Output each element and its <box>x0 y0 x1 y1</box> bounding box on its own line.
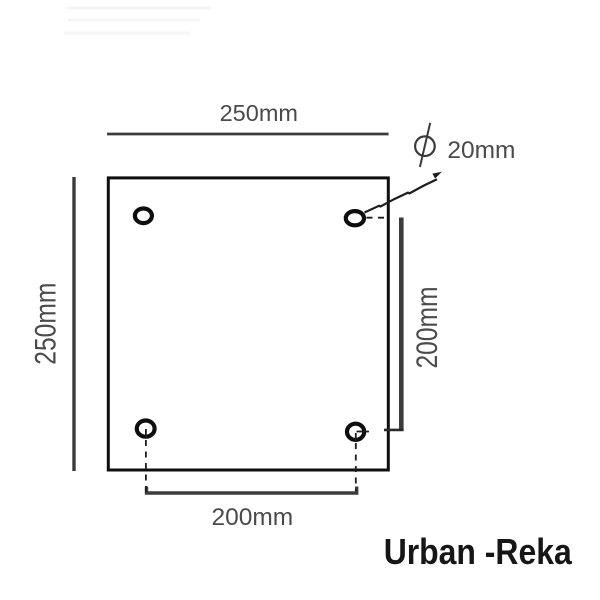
svg-text:250mm: 250mm <box>220 100 298 126</box>
svg-text:Urban -Reka: Urban -Reka <box>384 532 573 572</box>
svg-text:20mm: 20mm <box>447 137 515 164</box>
svg-text:200mm: 200mm <box>211 504 293 531</box>
svg-text:250mm: 250mm <box>28 283 62 365</box>
svg-text:200mm: 200mm <box>409 286 443 368</box>
